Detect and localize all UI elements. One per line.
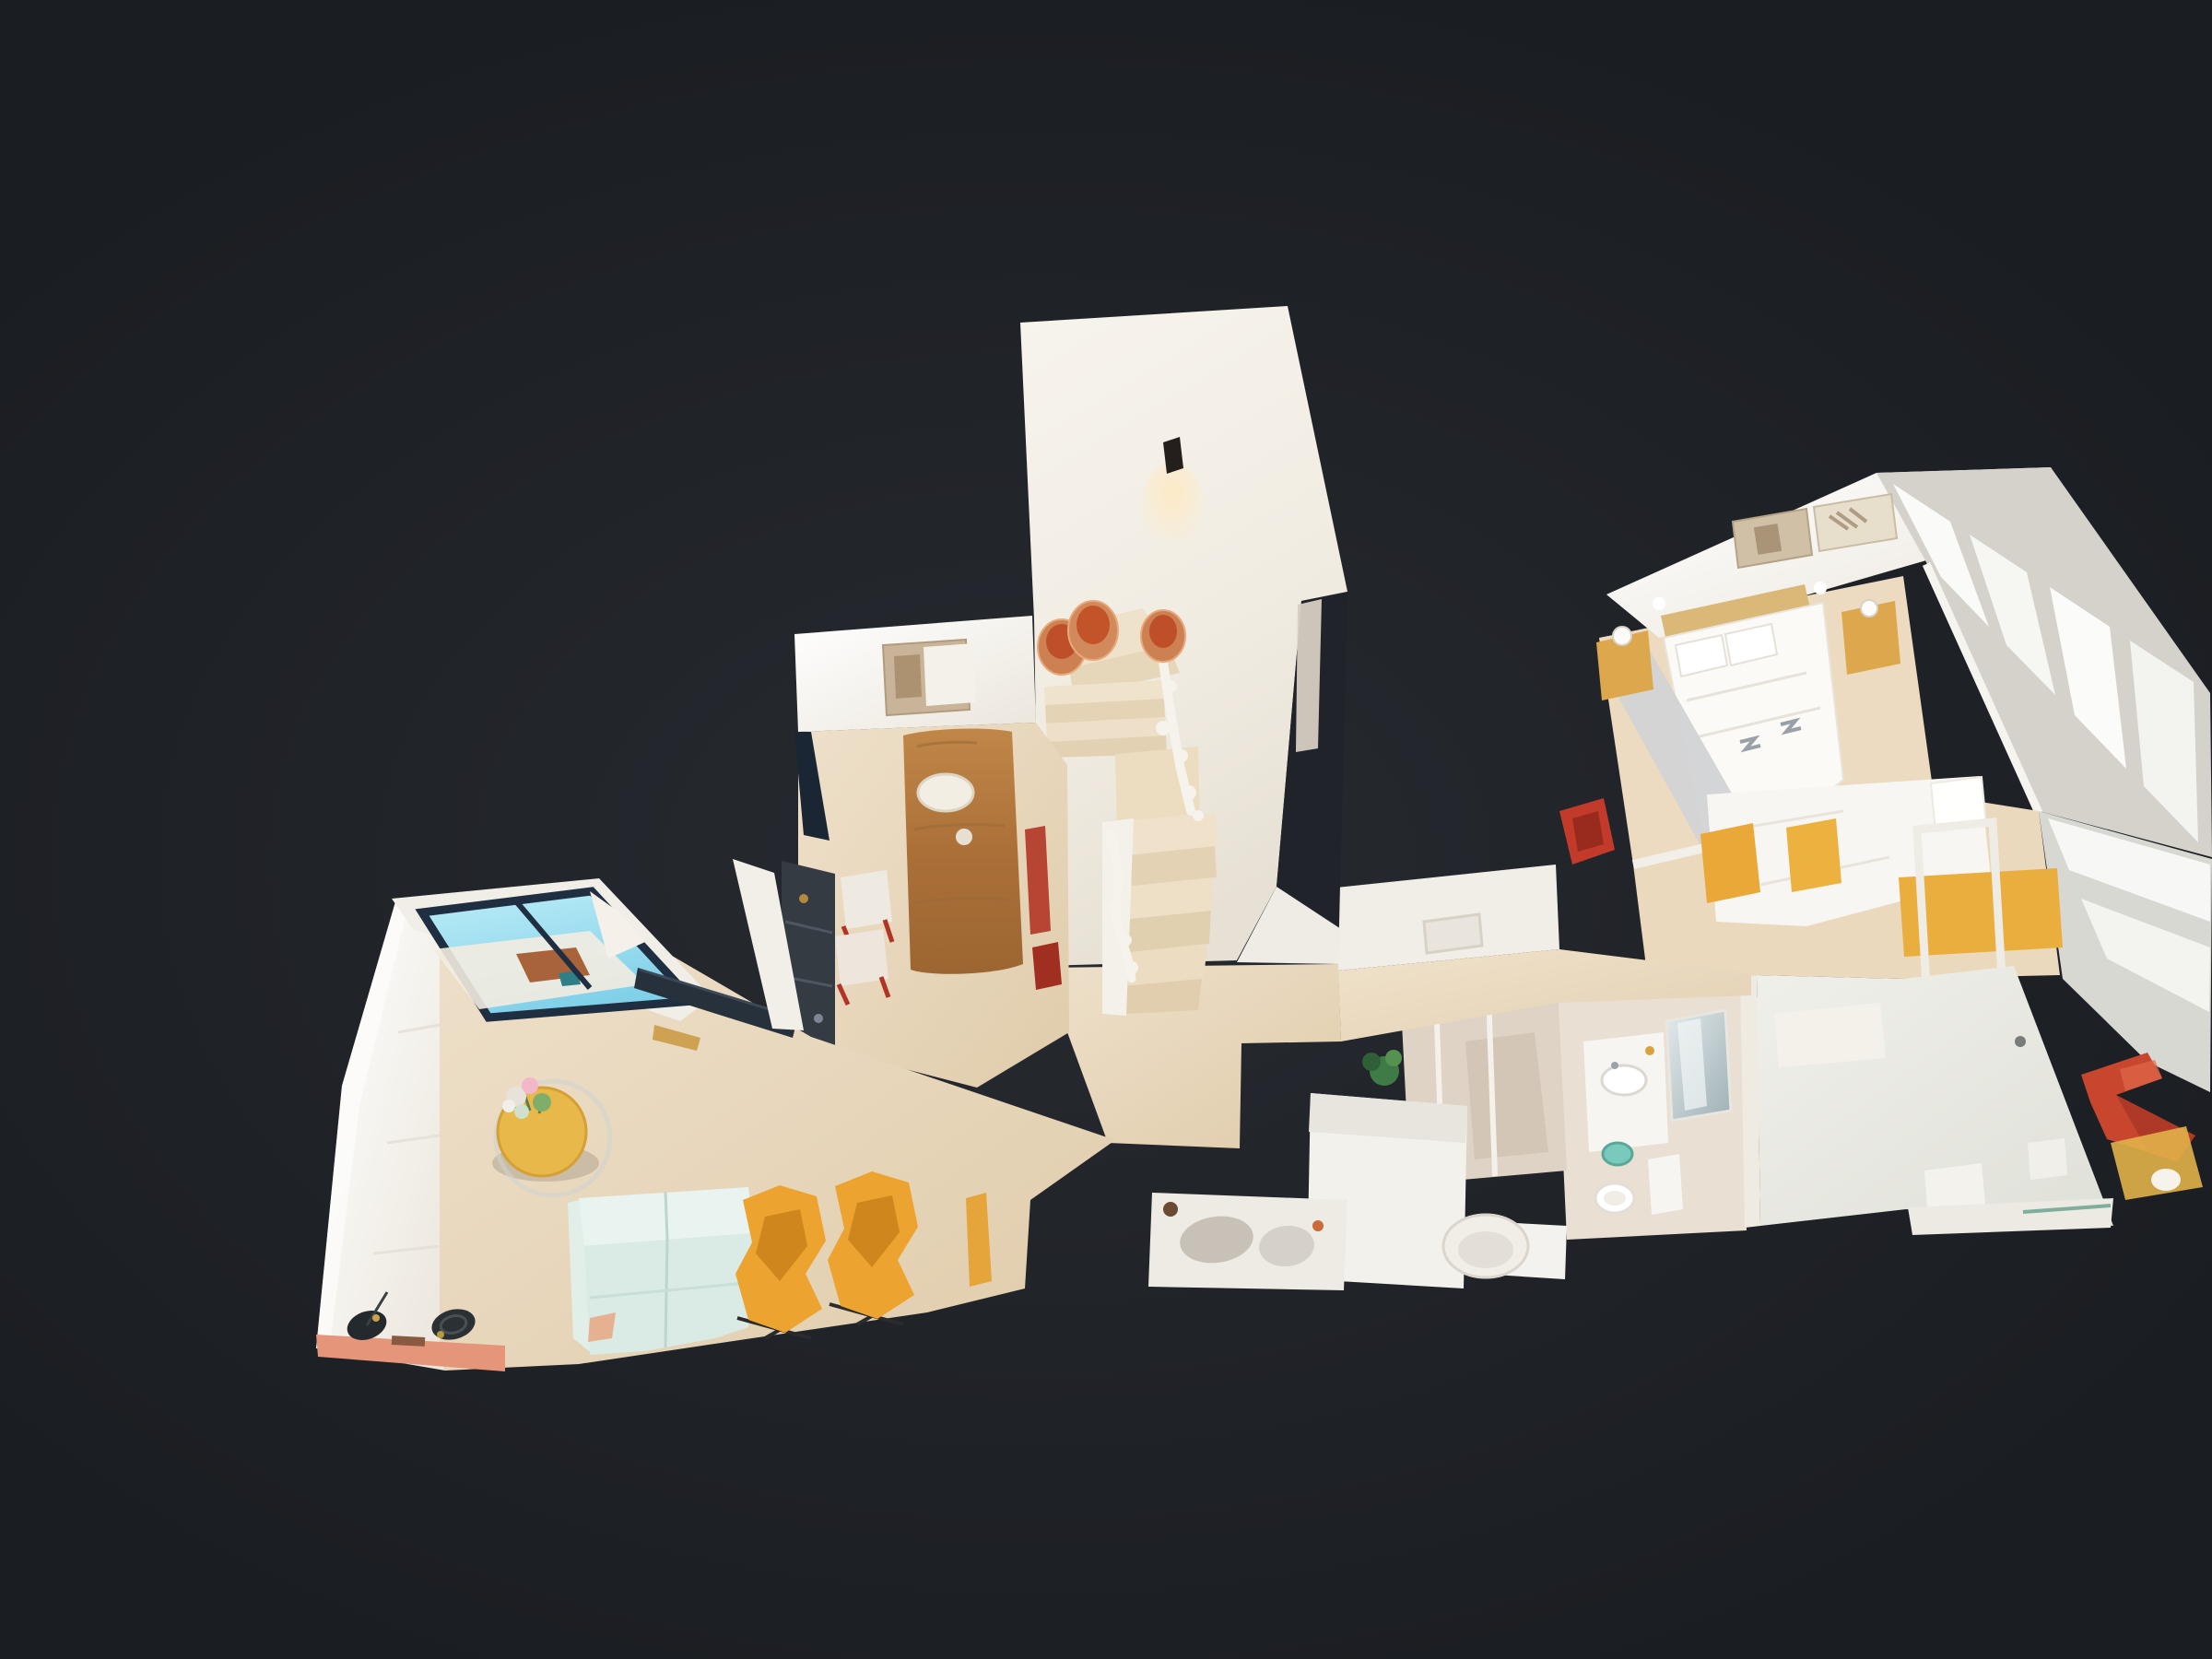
hall-credenza bbox=[1148, 1193, 1347, 1290]
bedroom-accent-chair bbox=[1559, 798, 1615, 865]
nightstand-right bbox=[1841, 600, 1900, 675]
lower-flight bbox=[1102, 813, 1218, 1016]
tub-chair bbox=[1443, 1215, 1528, 1277]
laundry-basket bbox=[1603, 1143, 1632, 1165]
staircase bbox=[1020, 306, 1347, 1148]
bathroom-mirror bbox=[1666, 1010, 1731, 1121]
apartment-3d-model bbox=[0, 0, 2212, 1659]
dining-room bbox=[782, 616, 1069, 1088]
plant bbox=[1362, 1050, 1402, 1086]
door-threshold bbox=[1424, 914, 1482, 953]
glass-item bbox=[956, 829, 972, 845]
sofa bbox=[568, 1187, 754, 1355]
dollhouse-viewer-canvas[interactable] bbox=[0, 0, 2212, 1659]
stair-door bbox=[1296, 599, 1322, 752]
wall-lamp-left bbox=[1653, 597, 1665, 610]
bath-mat bbox=[1774, 1003, 1886, 1067]
vanity bbox=[1583, 1032, 1668, 1152]
dining-wall-art bbox=[883, 640, 976, 715]
wall-lamp-right bbox=[1814, 582, 1827, 594]
curtain-wall bbox=[316, 899, 445, 1371]
live-edge-table bbox=[903, 729, 1023, 974]
bedroom2-window-blinds bbox=[2039, 811, 2212, 1092]
ensuite bbox=[1757, 966, 2113, 1235]
fruit-plate bbox=[918, 774, 973, 811]
